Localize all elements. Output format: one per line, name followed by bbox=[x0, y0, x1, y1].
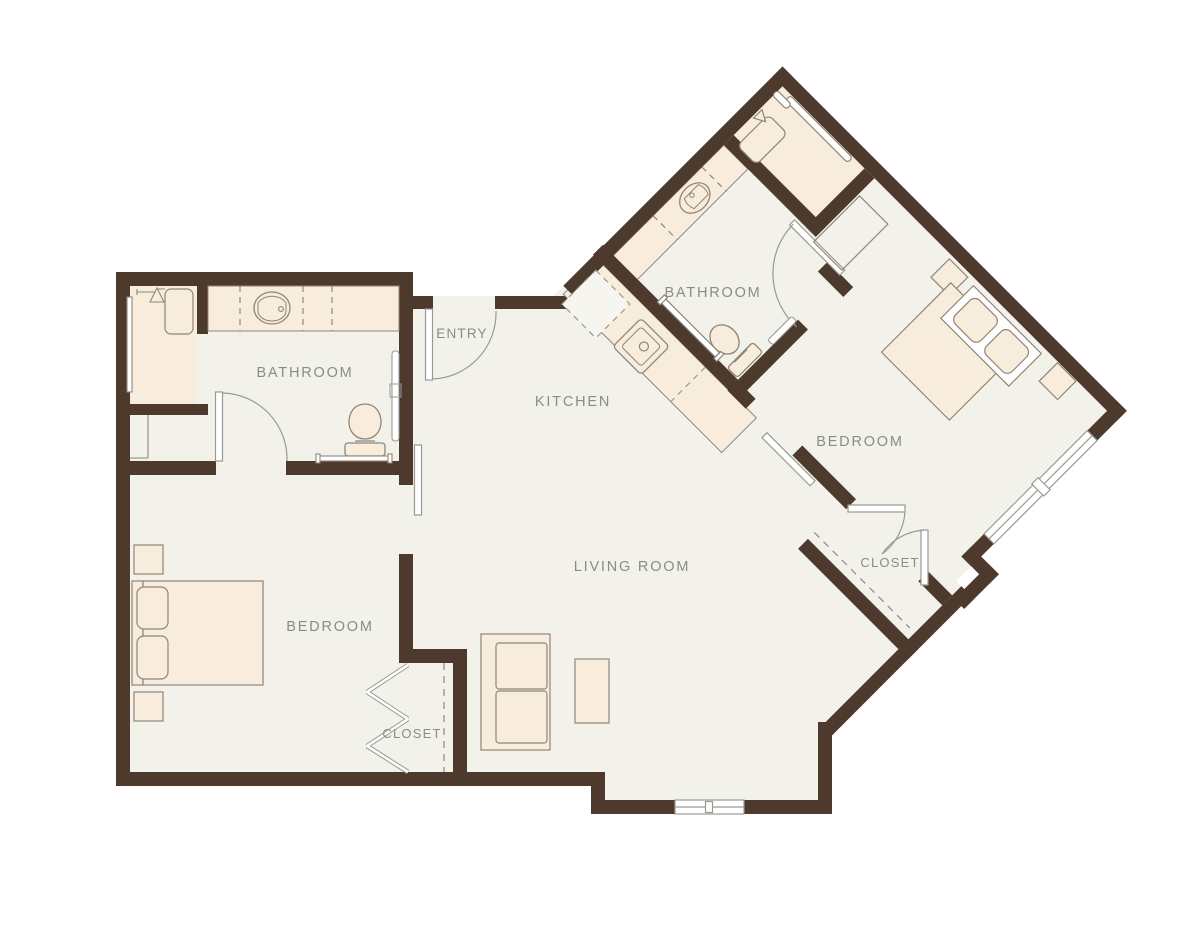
svg-text:BEDROOM: BEDROOM bbox=[286, 619, 374, 635]
svg-text:BATHROOM: BATHROOM bbox=[256, 365, 353, 381]
svg-text:LIVING ROOM: LIVING ROOM bbox=[574, 559, 690, 575]
svg-text:BEDROOM: BEDROOM bbox=[816, 434, 904, 450]
svg-text:ENTRY: ENTRY bbox=[436, 326, 488, 341]
svg-text:CLOSET: CLOSET bbox=[382, 726, 441, 741]
svg-text:KITCHEN: KITCHEN bbox=[535, 394, 611, 410]
svg-text:BATHROOM: BATHROOM bbox=[664, 285, 761, 301]
svg-text:CLOSET: CLOSET bbox=[860, 555, 919, 570]
